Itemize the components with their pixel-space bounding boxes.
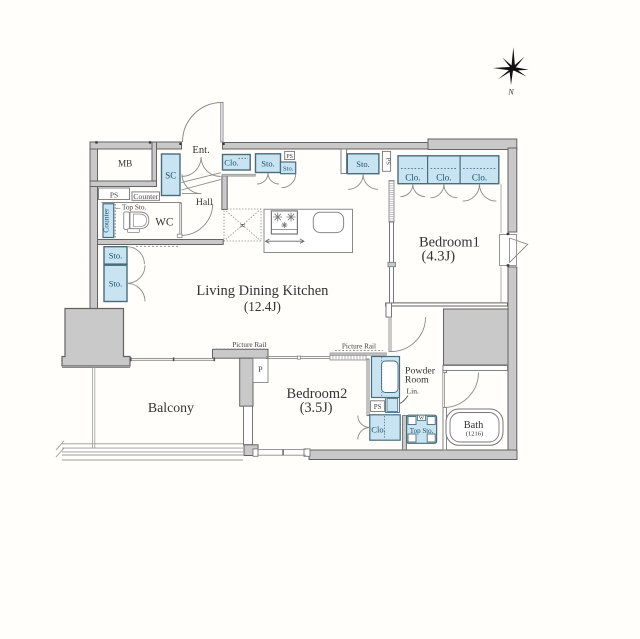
svg-text:Sto.: Sto.	[109, 279, 122, 289]
svg-text:Living Dining Kitchen: Living Dining Kitchen	[196, 283, 329, 299]
svg-text:P: P	[258, 365, 263, 374]
svg-text:Clo.: Clo.	[405, 173, 420, 183]
svg-text:Clo.: Clo.	[224, 157, 238, 167]
svg-text:W: W	[419, 416, 425, 422]
svg-text:WC: WC	[155, 216, 173, 228]
svg-text:Sto.: Sto.	[261, 159, 274, 169]
svg-text:R: R	[239, 223, 245, 227]
svg-text:N: N	[507, 88, 514, 97]
svg-text:←Top Sto.: ←Top Sto.	[115, 204, 147, 212]
svg-text:MB: MB	[118, 159, 132, 169]
svg-text:Counter: Counter	[102, 208, 111, 233]
svg-text:Picture Rail: Picture Rail	[232, 341, 266, 349]
svg-text:Balcony: Balcony	[148, 400, 194, 415]
svg-text:Sto.: Sto.	[109, 251, 122, 261]
svg-text:SC: SC	[165, 171, 176, 181]
svg-text:(1216): (1216)	[466, 431, 483, 438]
svg-text:PS: PS	[385, 158, 392, 166]
svg-text:Bath: Bath	[464, 420, 484, 431]
svg-text:Counter: Counter	[133, 192, 159, 201]
svg-text:(12.4J): (12.4J)	[244, 299, 281, 314]
svg-text:PS: PS	[110, 190, 118, 199]
svg-text:Top Sto.: Top Sto.	[410, 427, 434, 435]
svg-text:Sto.: Sto.	[283, 166, 294, 173]
svg-text:Clo.: Clo.	[472, 173, 487, 183]
svg-text:(3.5J): (3.5J)	[300, 400, 333, 416]
svg-text:Picture Rail: Picture Rail	[342, 342, 376, 350]
svg-text:Clo.: Clo.	[371, 424, 385, 434]
svg-text:Clo.: Clo.	[436, 173, 451, 183]
svg-text:(4.3J): (4.3J)	[421, 249, 455, 265]
svg-text:Ent.: Ent.	[192, 145, 209, 156]
svg-text:PS: PS	[286, 154, 293, 160]
svg-text:Sto.: Sto.	[356, 159, 369, 169]
svg-text:Hall: Hall	[196, 197, 213, 208]
svg-text:Lin.: Lin.	[407, 387, 419, 396]
svg-text:PS: PS	[374, 403, 382, 411]
svg-text:Room: Room	[405, 375, 429, 386]
